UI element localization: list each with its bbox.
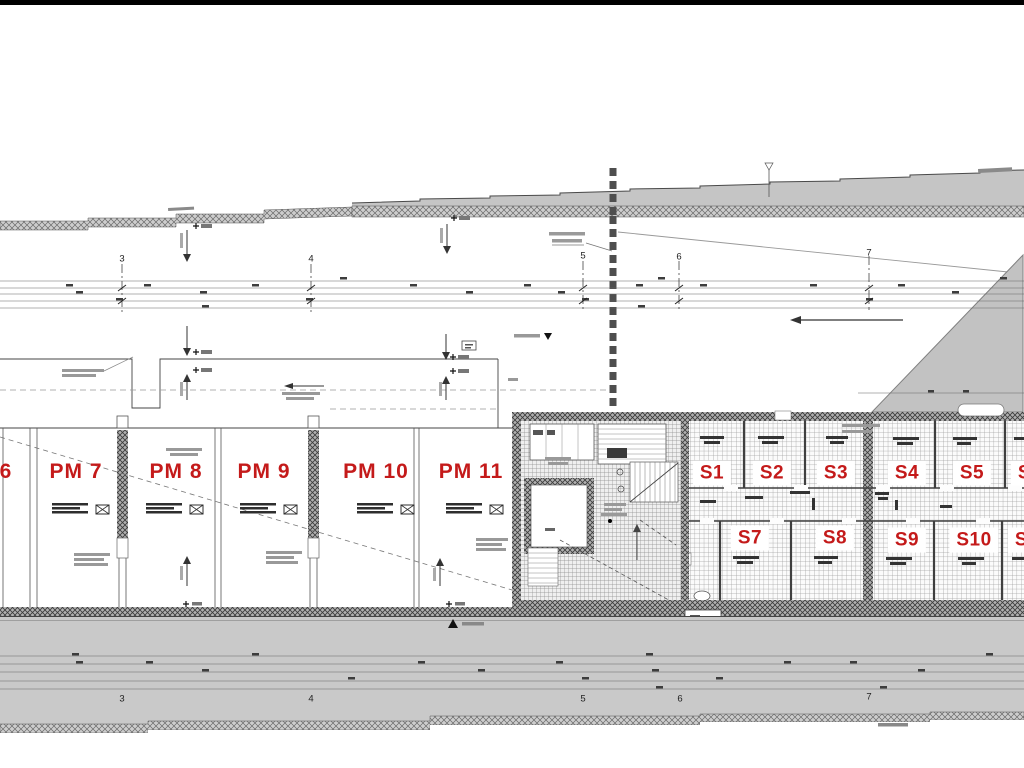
storage-unit-label: S11 xyxy=(1008,528,1024,553)
storage-unit-label: S2 xyxy=(753,461,791,486)
parking-space-label: PM 8 xyxy=(149,460,202,484)
terrain-band xyxy=(352,170,1024,206)
storage-block xyxy=(683,421,1024,601)
parking-space-label: PM 10 xyxy=(343,460,409,484)
parking-space-label: PM 9 xyxy=(237,460,290,484)
storage-unit-label: S8 xyxy=(816,526,854,551)
storage-unit-label: S5 xyxy=(953,461,991,486)
grid-axis-number: 3 xyxy=(119,254,124,265)
annotation-mark xyxy=(549,232,585,236)
storage-unit-label: S1 xyxy=(693,461,731,486)
shaft-opening xyxy=(531,485,587,547)
parking-space-label: PM 11 xyxy=(439,460,504,484)
storage-unit-label: S4 xyxy=(888,461,926,486)
stair-block xyxy=(521,421,681,604)
grid-axis-number: 7 xyxy=(866,692,871,703)
column-cap xyxy=(117,416,128,428)
storage-unit-label: S7 xyxy=(731,526,769,551)
ramp-triangle xyxy=(858,255,1024,412)
wall-opening-capsule xyxy=(958,404,1004,416)
grid-axis-number: 6 xyxy=(676,252,681,263)
storage-unit-label: S3 xyxy=(817,461,855,486)
parking-space-label: 6 xyxy=(0,460,12,484)
floor-plan-canvas: 6PM 7PM 8PM 9PM 10PM 11S1S2S3S4S5S6S7S8S… xyxy=(0,0,1024,768)
storage-unit-label: S6 xyxy=(1011,461,1024,486)
top-border-bar xyxy=(0,0,1024,5)
grid-axis-number: 7 xyxy=(866,248,871,259)
grid-axis-number: 4 xyxy=(308,694,313,705)
column xyxy=(308,430,319,538)
grid-axis-number: 3 xyxy=(119,694,124,705)
storage-unit-label: S9 xyxy=(888,528,926,553)
annotation-mark xyxy=(878,723,908,727)
interior-wall xyxy=(863,421,873,600)
grid-axis-number: 5 xyxy=(580,694,585,705)
grid-axis-number: 4 xyxy=(308,254,313,265)
parking-space-label: PM 7 xyxy=(49,460,102,484)
annotation-mark xyxy=(552,239,582,243)
floor-plan-drawing xyxy=(0,0,1024,768)
column-cap xyxy=(308,416,319,428)
grid-axis-number: 6 xyxy=(677,694,682,705)
upper-dimension-lines xyxy=(0,281,1024,308)
grid-axis-number: 5 xyxy=(580,251,585,262)
column xyxy=(117,430,128,538)
top-wall-hatch-band xyxy=(0,206,1024,230)
storage-unit-label: S10 xyxy=(949,528,998,553)
wall-opening xyxy=(775,411,791,420)
